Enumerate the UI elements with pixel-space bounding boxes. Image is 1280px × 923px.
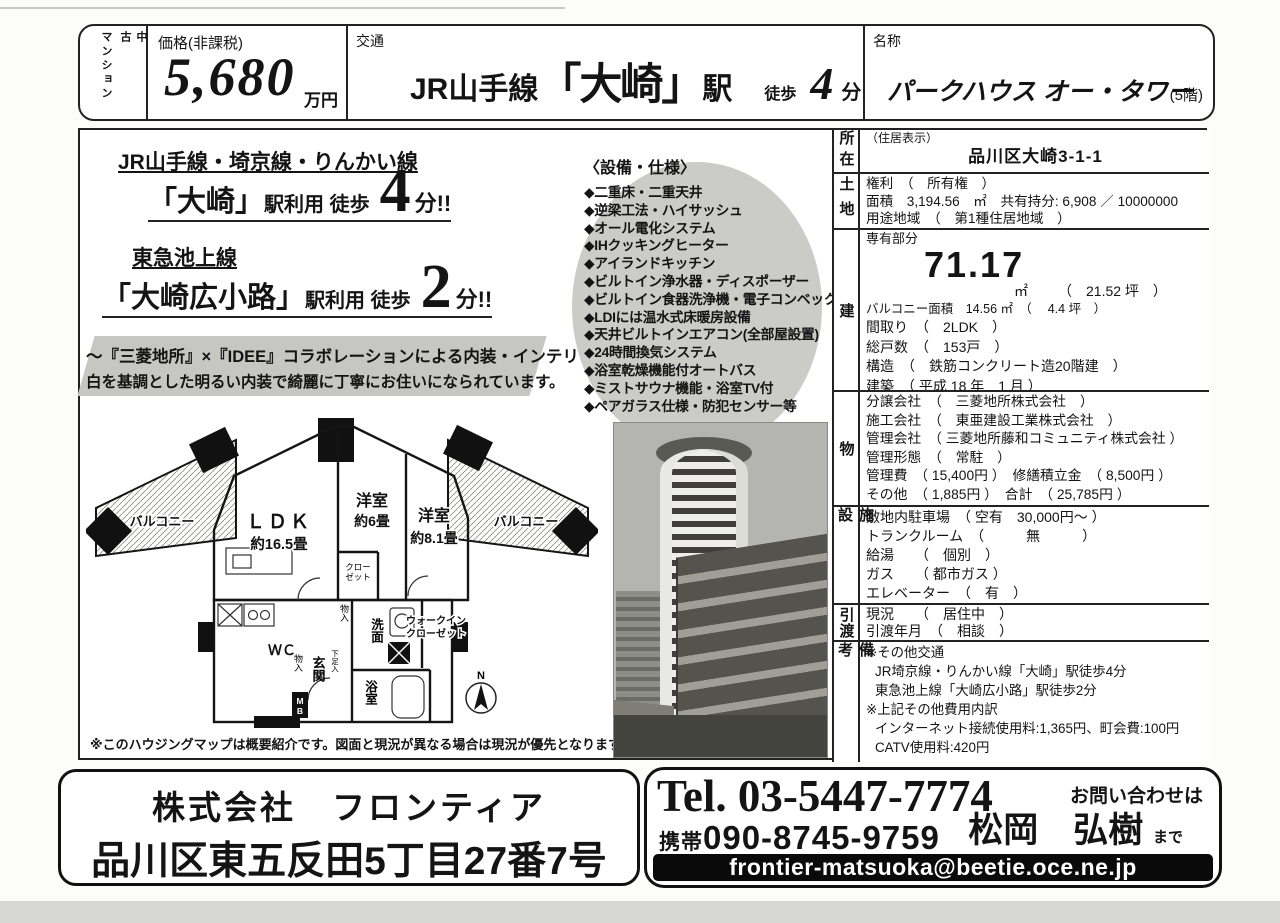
balcony-area: バルコニー面積 14.56 ㎡ （ 4.4 坪 ） — [866, 301, 1205, 318]
name-label: 名称 — [873, 31, 901, 51]
equipment-item: ◆ミストサウナ機能・浴室TV付 — [584, 380, 840, 398]
room-b-label: 洋室 — [418, 506, 450, 525]
constructor: 施工会社 （ 東亜建設工業株式会社 ） — [866, 412, 1205, 431]
management-company: 管理会社 （ 三菱地所藤和コミュニティ株式会社 ） — [866, 430, 1205, 449]
transport-minutes: 4 — [810, 57, 833, 110]
row-label-property: 物 — [836, 441, 857, 456]
row-land: 土地 権利 （ 所有権 ） 面積 3,194.56 ㎡ 共有持分: 6,908 … — [834, 174, 1209, 230]
ldk-size-label: 約16.5畳 — [250, 535, 308, 553]
gas: ガス （ 都市ガス ） — [866, 565, 1205, 584]
row-remarks: 備考 ※その他交通 JR埼京線・りんかい線「大崎」駅徒歩4分 東急池上線「大崎広… — [834, 642, 1209, 762]
access-line2-minutes: 2 — [421, 260, 452, 316]
ldk-label: ＬＤＫ — [246, 512, 312, 533]
access-line1-station: 「大崎」 — [148, 178, 264, 220]
company-address: 品川区東五反田5丁目27番7号 — [61, 830, 637, 886]
parking: 敷地内駐車場 （ 空有 30,000円～ ） — [866, 508, 1205, 527]
row-property-companies: 物 分譲会社 （ 三菱地所株式会社 ） 施工会社 （ 東亜建設工業株式会社 ） … — [834, 392, 1209, 507]
land-rights: 権利 （ 所有権 ） — [866, 175, 1205, 193]
closet-label2: ゼット — [345, 572, 371, 582]
equipment-item: ◆オール電化システム — [584, 220, 840, 238]
storage-left-label: 物入 — [293, 653, 303, 672]
mobile-number: 携帯090-8745-9759 — [659, 819, 940, 857]
transport-label: 交通 — [356, 31, 384, 51]
access-line2-use: 駅利用 徒歩 — [305, 284, 411, 313]
name-cell: 名称 パークハウス オー・タワー (5階) — [865, 26, 1213, 119]
remarks-other-transport: ※その他交通 — [866, 643, 1205, 662]
row-location: 所在 （住居表示） 品川区大崎3-1-1 — [834, 130, 1209, 174]
row-handover: 引渡 現況 （ 居住中 ） 引渡年月 （ 相談 ） — [834, 605, 1209, 642]
row-label-building: 建 — [836, 303, 857, 318]
exclusive-area-label: 専有部分 — [866, 231, 1205, 246]
trunk-room: トランクルーム （ 無 ） — [866, 527, 1205, 546]
company-box: 株式会社 フロンティア 品川区東五反田5丁目27番7号 — [58, 769, 640, 886]
corner-block-topcenter — [318, 418, 354, 462]
layout-type: 間取り （ 2LDK ） — [866, 318, 1205, 338]
management-fee: 管理費 （ 15,400円 ） 修繕積立金 （ 8,500円 ） — [866, 467, 1205, 486]
property-name: パークハウス オー・タワー — [887, 72, 1193, 108]
access-line1-minutes: 4 — [380, 164, 411, 220]
row-facilities: 施設 敷地内駐車場 （ 空有 30,000円～ ） トランクルーム （ 無 ） … — [834, 507, 1209, 605]
remarks-internet-fee: インターネット接続使用料:1,365円、町会費:100円 — [866, 719, 1205, 738]
other-fee-total: その他 （ 1,885円 ） 合計 （ 25,785円 ） — [866, 486, 1205, 505]
photo-distant-buildings — [616, 591, 660, 711]
header-box: マンション 中古 価格(非課税) 5,680 万円 交通 JR山手線 「大崎」 … — [78, 24, 1215, 121]
row-building: 建 専有部分 71.17 ㎡ （ 21.52 坪 ） バルコニー面積 14.56… — [834, 230, 1209, 392]
wic-label-2: クローゼット — [406, 627, 466, 640]
developer: 分譲会社 （ 三菱地所株式会社 ） — [866, 393, 1205, 412]
photo-front-building — [676, 532, 828, 743]
handover-date: 引渡年月 （ 相談 ） — [866, 623, 1205, 640]
closet-label: クロー — [345, 562, 371, 572]
mobile-digits: 090-8745-9759 — [703, 819, 940, 856]
hot-water: 給湯 （ 個別 ） — [866, 546, 1205, 565]
transport-walk-label: 徒歩 — [764, 80, 796, 104]
floorplan-note: ※このハウジングマップは概要紹介です。図面と現況が異なる場合は現況が優先となりま… — [90, 734, 633, 753]
row-label-location: 所在 — [836, 130, 857, 172]
door-arc — [408, 576, 428, 596]
scan-artifact-line — [0, 7, 565, 9]
equipment-item: ◆逆梁工法・ハイサッシュ — [584, 202, 840, 220]
row-label-handover: 引渡 — [836, 607, 857, 639]
room-a-label: 洋室 — [356, 491, 388, 510]
access-line1-station-row: 「大崎」 駅利用 徒歩 4 分!! — [148, 164, 451, 222]
price-value: 5,680 — [164, 46, 296, 108]
equipment-item: ◆24時間換気システム — [584, 344, 840, 362]
contact-name: 松岡 弘樹 — [968, 811, 1143, 850]
entrance-label: 玄関 — [311, 655, 326, 683]
transport-minutes-unit: 分 — [841, 76, 861, 105]
mb-label: MB — [295, 696, 305, 716]
equipment-item: ◆ビルトイン浄水器・ディスポーザー — [584, 273, 840, 291]
contact-suffix: まで — [1153, 829, 1183, 846]
floorplan: MB バルコニー バルコニー ＬＤＫ 約16.5畳 洋室 約6畳 洋室 約8.1… — [86, 418, 598, 730]
address-display-label: （住居表示） — [866, 131, 1205, 145]
banner-line1: ～『三菱地所』×『IDEE』コラボレーションによる内装・インテリア ～ — [86, 336, 538, 367]
balcony-right-label: バルコニー — [494, 514, 559, 529]
transport-station-suffix: 駅 — [702, 64, 732, 108]
category-sub-label: 中古 — [117, 31, 149, 114]
photo-ground — [614, 715, 827, 757]
equipment-item: ◆浴室乾燥機能付オートバス — [584, 362, 840, 380]
flyer-page: マンション 中古 価格(非課税) 5,680 万円 交通 JR山手線 「大崎」 … — [0, 0, 1280, 923]
shoe-box-label: 下足入 — [330, 650, 339, 673]
land-zoning: 用途地域 （ 第1種住居地域 ） — [866, 210, 1205, 228]
equipment-title: 〈設備・仕様〉 — [584, 154, 840, 178]
current-status: 現況 （ 居住中 ） — [866, 606, 1205, 623]
row-label-land: 土地 — [836, 176, 857, 226]
door-arc — [298, 578, 320, 600]
access-line2-station-row: 「大崎広小路」 駅利用 徒歩 2 分!! — [102, 260, 492, 318]
compass-n-label: N — [477, 670, 485, 682]
remarks-transport-1: JR埼京線・りんかい線「大崎」駅徒歩4分 — [866, 662, 1205, 681]
balcony-left-label: バルコニー — [130, 514, 195, 529]
price-unit: 万円 — [304, 86, 338, 111]
mobile-label: 携帯 — [659, 831, 703, 854]
room-b-size-label: 約8.1畳 — [410, 530, 457, 546]
transport-text: JR山手線 「大崎」 駅 徒歩 4 分 — [410, 50, 861, 112]
transport-station-name: 「大崎」 — [538, 50, 702, 112]
price-cell: 価格(非課税) 5,680 万円 — [148, 26, 348, 119]
remarks-transport-2: 東急池上線「大崎広小路」駅徒歩2分 — [866, 681, 1205, 700]
equipment-item: ◆ビルトイン食器洗浄機・電子コンベック — [584, 291, 840, 309]
building-photo — [613, 422, 828, 758]
equipment-item: ◆IHクッキングヒーター — [584, 237, 840, 255]
wc-label: ＷＣ — [268, 642, 296, 658]
transport-cell: 交通 JR山手線 「大崎」 駅 徒歩 4 分 — [348, 26, 865, 119]
storage-top-label: 物入 — [339, 603, 349, 622]
equipment-item: ◆LDIには温水式床暖房設備 — [584, 309, 840, 327]
contact-person: 松岡 弘樹 まで — [968, 802, 1183, 853]
remarks-catv-fee: CATV使用料:420円 — [866, 738, 1205, 757]
access-line1-use: 駅利用 徒歩 — [264, 188, 370, 217]
land-area: 面積 3,194.56 ㎡ 共有持分: 6,908 ／ 10000000 — [866, 193, 1205, 211]
equipment-item: ◆ペアガラス仕様・防犯センサー等 — [584, 398, 840, 416]
elevator: エレベーター （ 有 ） — [866, 584, 1205, 603]
interior-banner: ～『三菱地所』×『IDEE』コラボレーションによる内装・インテリア ～ 白を基調… — [86, 336, 538, 396]
equipment-item: ◆天井ビルトインエアコン(全部屋設置) — [584, 326, 840, 344]
contact-box: Tel. 03-5447-7774 お問い合わせは 携帯090-8745-975… — [644, 767, 1222, 888]
built-date: 建築 （ 平成 18 年 1 月 ） — [866, 377, 1205, 392]
company-name: 株式会社 フロンティア — [61, 781, 637, 829]
banner-line2: 白を基調とした明るい内装で綺麗に丁寧にお住いになられています。 — [86, 370, 538, 392]
access-line1-suffix: 分!! — [415, 186, 452, 218]
email-bar: frontier-matsuoka@beetie.oce.ne.jp — [653, 854, 1213, 881]
tel-number: Tel. 03-5447-7774 — [657, 770, 993, 822]
exclusive-area-tsubo: （ 21.52 坪 ） — [1058, 283, 1167, 299]
management-type: 管理形態 （ 常駐 ） — [866, 449, 1205, 468]
main-content-box: JR山手線・埼京線・りんかい線 「大崎」 駅利用 徒歩 4 分!! 東急池上線 … — [78, 128, 1207, 760]
exclusive-area-value: 71.17 — [924, 246, 1205, 283]
washroom-label: 洗面 — [369, 617, 383, 644]
category-cell: マンション 中古 — [80, 26, 148, 119]
access-line2-station: 「大崎広小路」 — [102, 274, 305, 316]
remarks-fee-breakdown: ※上記その他費用内訳 — [866, 700, 1205, 719]
bathroom-label: 浴室 — [363, 679, 377, 706]
bathtub-icon — [392, 676, 424, 718]
total-units: 総戸数 （ 153戸 ） — [866, 338, 1205, 358]
details-table: 所在 （住居表示） 品川区大崎3-1-1 土地 権利 （ 所有権 ） 面積 3,… — [832, 130, 1209, 762]
wic-label-1: ウォークイン — [406, 615, 466, 627]
transport-line-name: JR山手線 — [410, 64, 538, 108]
equipment-list: 〈設備・仕様〉 ◆二重床・二重天井 ◆逆梁工法・ハイサッシュ ◆オール電化システ… — [584, 154, 840, 415]
room-a-size-label: 約6畳 — [354, 513, 390, 529]
category-main-label: マンション — [98, 31, 114, 114]
exclusive-area-unit: ㎡ — [1014, 283, 1028, 299]
equipment-item: ◆アイランドキッチン — [584, 255, 840, 273]
property-floor: (5階) — [1170, 84, 1203, 105]
structure: 構造 （ 鉄筋コンクリート造20階建 ） — [866, 357, 1205, 377]
access-line2-suffix: 分!! — [456, 282, 493, 314]
address-value: 品川区大崎3-1-1 — [866, 145, 1205, 169]
equipment-item: ◆二重床・二重天井 — [584, 184, 840, 202]
floorplan-svg: MB バルコニー バルコニー ＬＤＫ 約16.5畳 洋室 約6畳 洋室 約8.1… — [86, 418, 598, 730]
